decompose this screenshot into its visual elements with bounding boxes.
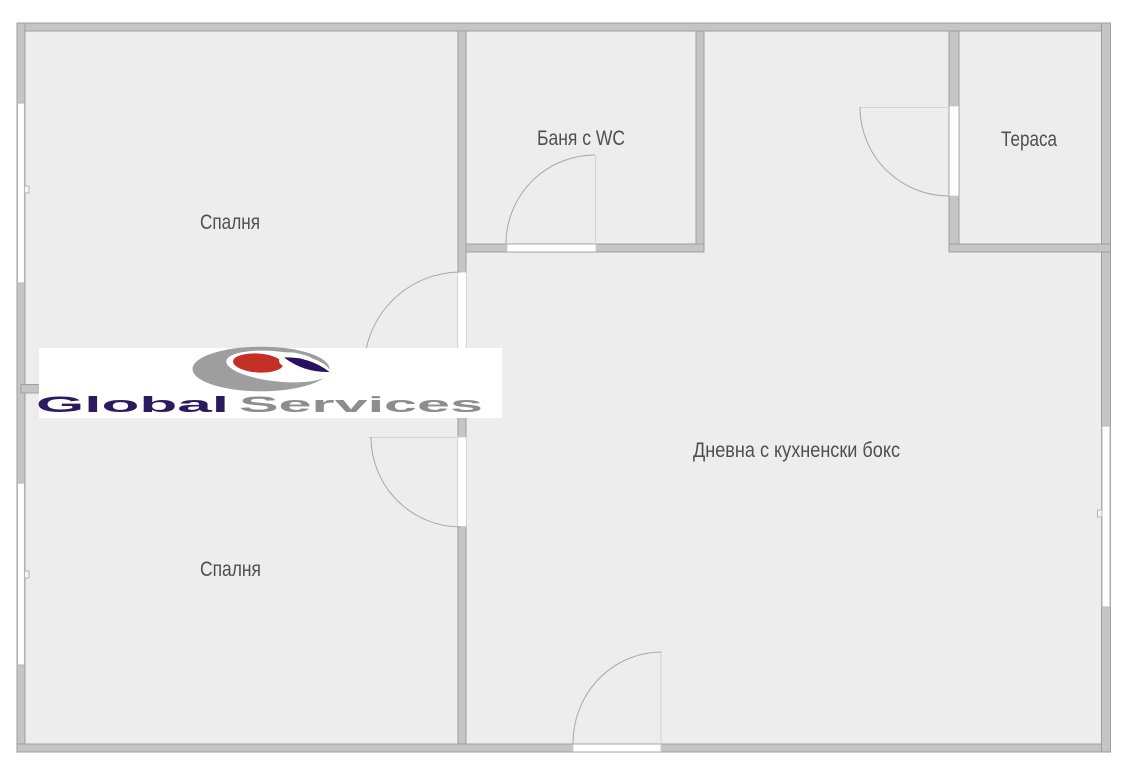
svg-text:Спалня: Спалня xyxy=(200,557,261,581)
svg-text:Баня с WC: Баня с WC xyxy=(537,126,625,150)
svg-text:Дневна с кухненски бокс: Дневна с кухненски бокс xyxy=(693,438,900,462)
svg-text:Global: Global xyxy=(36,392,229,417)
svg-text:Services: Services xyxy=(239,392,483,417)
svg-text:Тераса: Тераса xyxy=(1001,127,1057,151)
svg-text:Спалня: Спалня xyxy=(200,210,260,234)
